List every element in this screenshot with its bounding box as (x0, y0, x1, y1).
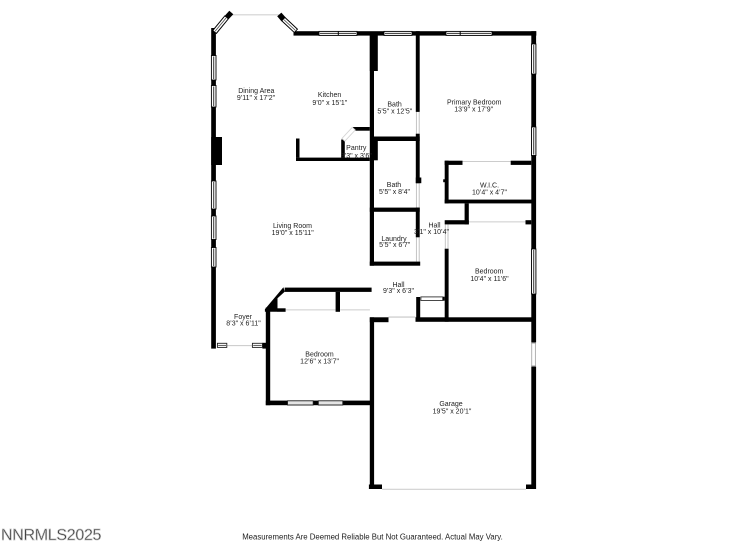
svg-text:9’0" x 15’1": 9’0" x 15’1" (312, 100, 347, 107)
svg-text:19’5" x 20’1": 19’5" x 20’1" (433, 408, 472, 415)
svg-text:Pantry: Pantry (346, 145, 367, 152)
svg-text:Kitchen: Kitchen (318, 92, 341, 99)
svg-text:Garage: Garage (439, 401, 462, 408)
svg-text:13’9" x 17’9": 13’9" x 17’9" (454, 107, 493, 114)
svg-text:3’3" x 3’6": 3’3" x 3’6" (341, 153, 373, 160)
svg-text:5’5" x 6’7": 5’5" x 6’7" (379, 242, 411, 249)
svg-text:9’11" x 17’2": 9’11" x 17’2" (237, 95, 276, 102)
svg-text:NNRMLS2025: NNRMLS2025 (1, 527, 102, 544)
svg-text:Bedroom: Bedroom (475, 269, 504, 276)
svg-text:19’0" x 15’11": 19’0" x 15’11" (272, 230, 315, 237)
svg-text:3’1" x 10’4": 3’1" x 10’4" (414, 229, 449, 236)
svg-text:Measurements Are Deemed Reliab: Measurements Are Deemed Reliable But Not… (242, 533, 503, 542)
svg-text:12’6" x 13’7": 12’6" x 13’7" (300, 359, 339, 366)
svg-text:10’4" x 4’7": 10’4" x 4’7" (472, 189, 507, 196)
svg-text:5’5" x 12’5": 5’5" x 12’5" (377, 108, 412, 115)
svg-text:5’5" x 8’4": 5’5" x 8’4" (379, 189, 411, 196)
svg-text:8’3" x 6’11": 8’3" x 6’11" (226, 320, 261, 327)
svg-text:Living Room: Living Room (273, 223, 312, 230)
svg-text:9’3" x 6’3": 9’3" x 6’3" (383, 288, 415, 295)
svg-text:Bedroom: Bedroom (305, 352, 334, 359)
svg-text:Bath: Bath (387, 101, 402, 108)
svg-text:Primary Bedroom: Primary Bedroom (447, 99, 502, 106)
svg-text:10’4" x 11’6": 10’4" x 11’6" (470, 276, 509, 283)
